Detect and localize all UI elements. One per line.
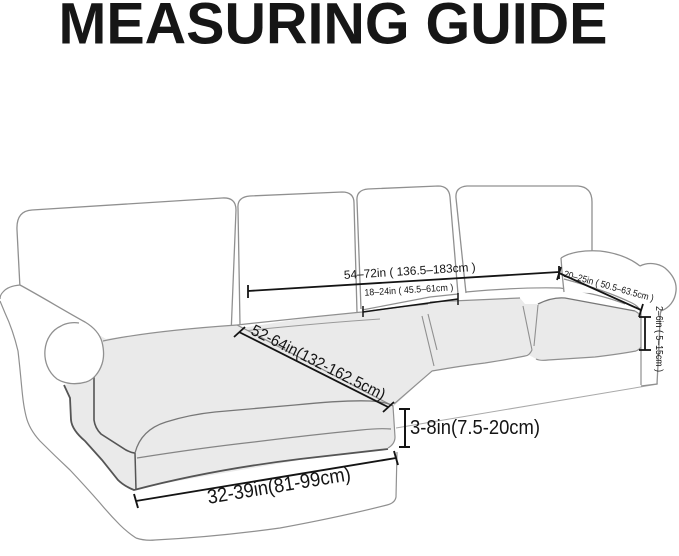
svg-text:3-8in(7.5-20cm): 3-8in(7.5-20cm) bbox=[410, 416, 540, 439]
svg-text:MEASURING GUIDE: MEASURING GUIDE bbox=[59, 0, 608, 57]
svg-text:2–6in ( 5–15cm ): 2–6in ( 5–15cm ) bbox=[653, 306, 664, 372]
